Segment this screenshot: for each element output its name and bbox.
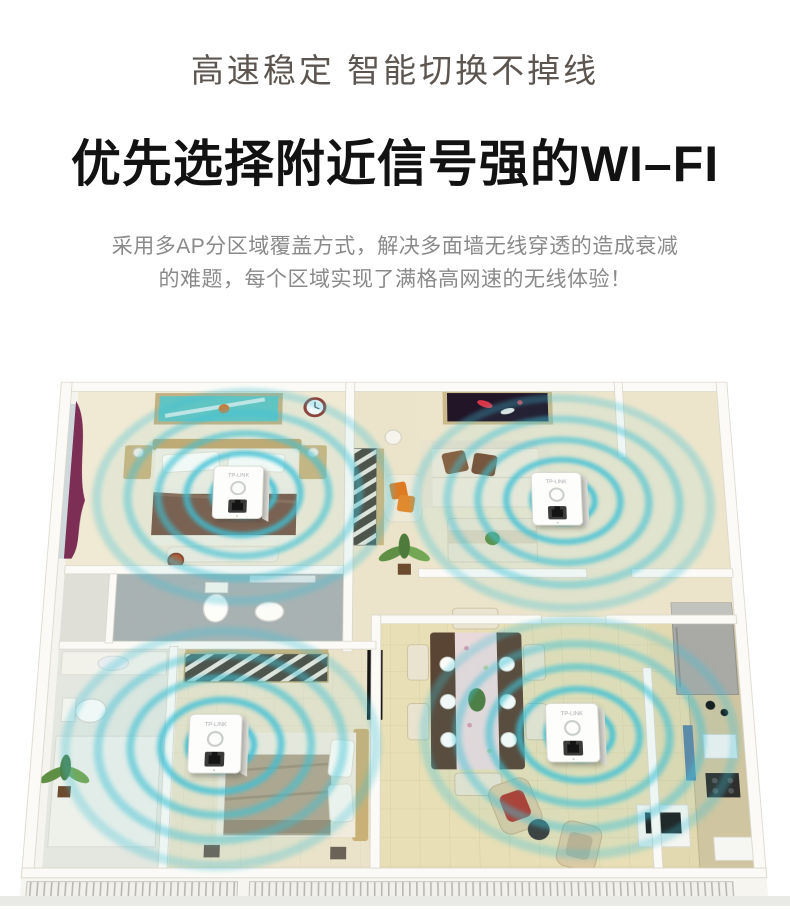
description: 采用多AP分区域覆盖方式，解决多面墙无线穿透的造成衰减 的难题，每个区域实现了满… <box>0 230 790 296</box>
sink <box>255 602 284 621</box>
floorplan-svg: TP-LINK <box>0 373 790 905</box>
page-title: 优先选择附近信号强的WI–FI <box>0 124 790 196</box>
bedside-stool <box>330 847 346 860</box>
subtitle: 高速稳定 智能切换不掉线 <box>0 44 790 92</box>
small-table <box>714 837 756 860</box>
dining-chair <box>407 645 428 680</box>
ap-device-3 <box>187 714 249 776</box>
ap-device-1 <box>212 466 270 522</box>
description-line-1: 采用多AP分区域覆盖方式，解决多面墙无线穿透的造成衰减 <box>112 235 679 258</box>
ap-device-2 <box>531 473 589 529</box>
apartment-floorplan: TP-LINK <box>0 373 790 905</box>
vase <box>385 430 401 444</box>
page-footer-strip <box>0 896 790 906</box>
ap-device-4 <box>545 703 607 765</box>
description-line-2: 的难题，每个区域实现了满格高网速的无线体验！ <box>159 268 632 291</box>
